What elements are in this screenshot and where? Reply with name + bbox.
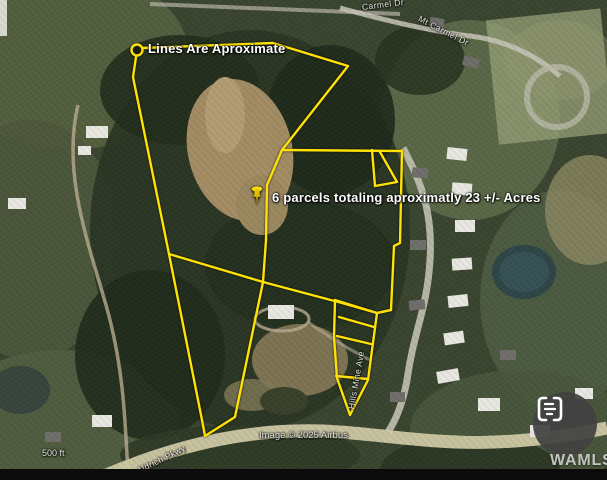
small-parcel-divider-2 <box>337 336 371 344</box>
scan-text-icon <box>533 392 567 426</box>
parcel-main-outline <box>133 43 348 436</box>
scan-text-button[interactable] <box>533 392 597 456</box>
imagery-attribution: Image © 2025 Airbus <box>259 430 348 441</box>
parcel-acreage-label: 6 parcels totaling aproximatly 23 +/- Ac… <box>272 190 541 205</box>
lines-approximate-label: Lines Are Aproximate <box>148 41 285 56</box>
pushpin-icon <box>252 186 262 205</box>
listing-photo-satellite-map: Lines Are Aproximate 6 parcels totaling … <box>0 0 607 480</box>
map-scale-label: 500 ft <box>42 448 65 458</box>
letterbox-bar <box>0 469 607 480</box>
parcel-right-outline <box>263 150 402 313</box>
small-parcel-divider-1 <box>339 317 374 327</box>
small-parcels-connector <box>377 310 391 313</box>
parcel-divider-line <box>169 254 263 282</box>
parcel-sliver-lines <box>372 150 397 186</box>
parcel-boundary-overlay <box>0 0 607 480</box>
circle-pin-dot <box>135 48 138 51</box>
wamls-watermark: WAMLS <box>550 452 607 470</box>
